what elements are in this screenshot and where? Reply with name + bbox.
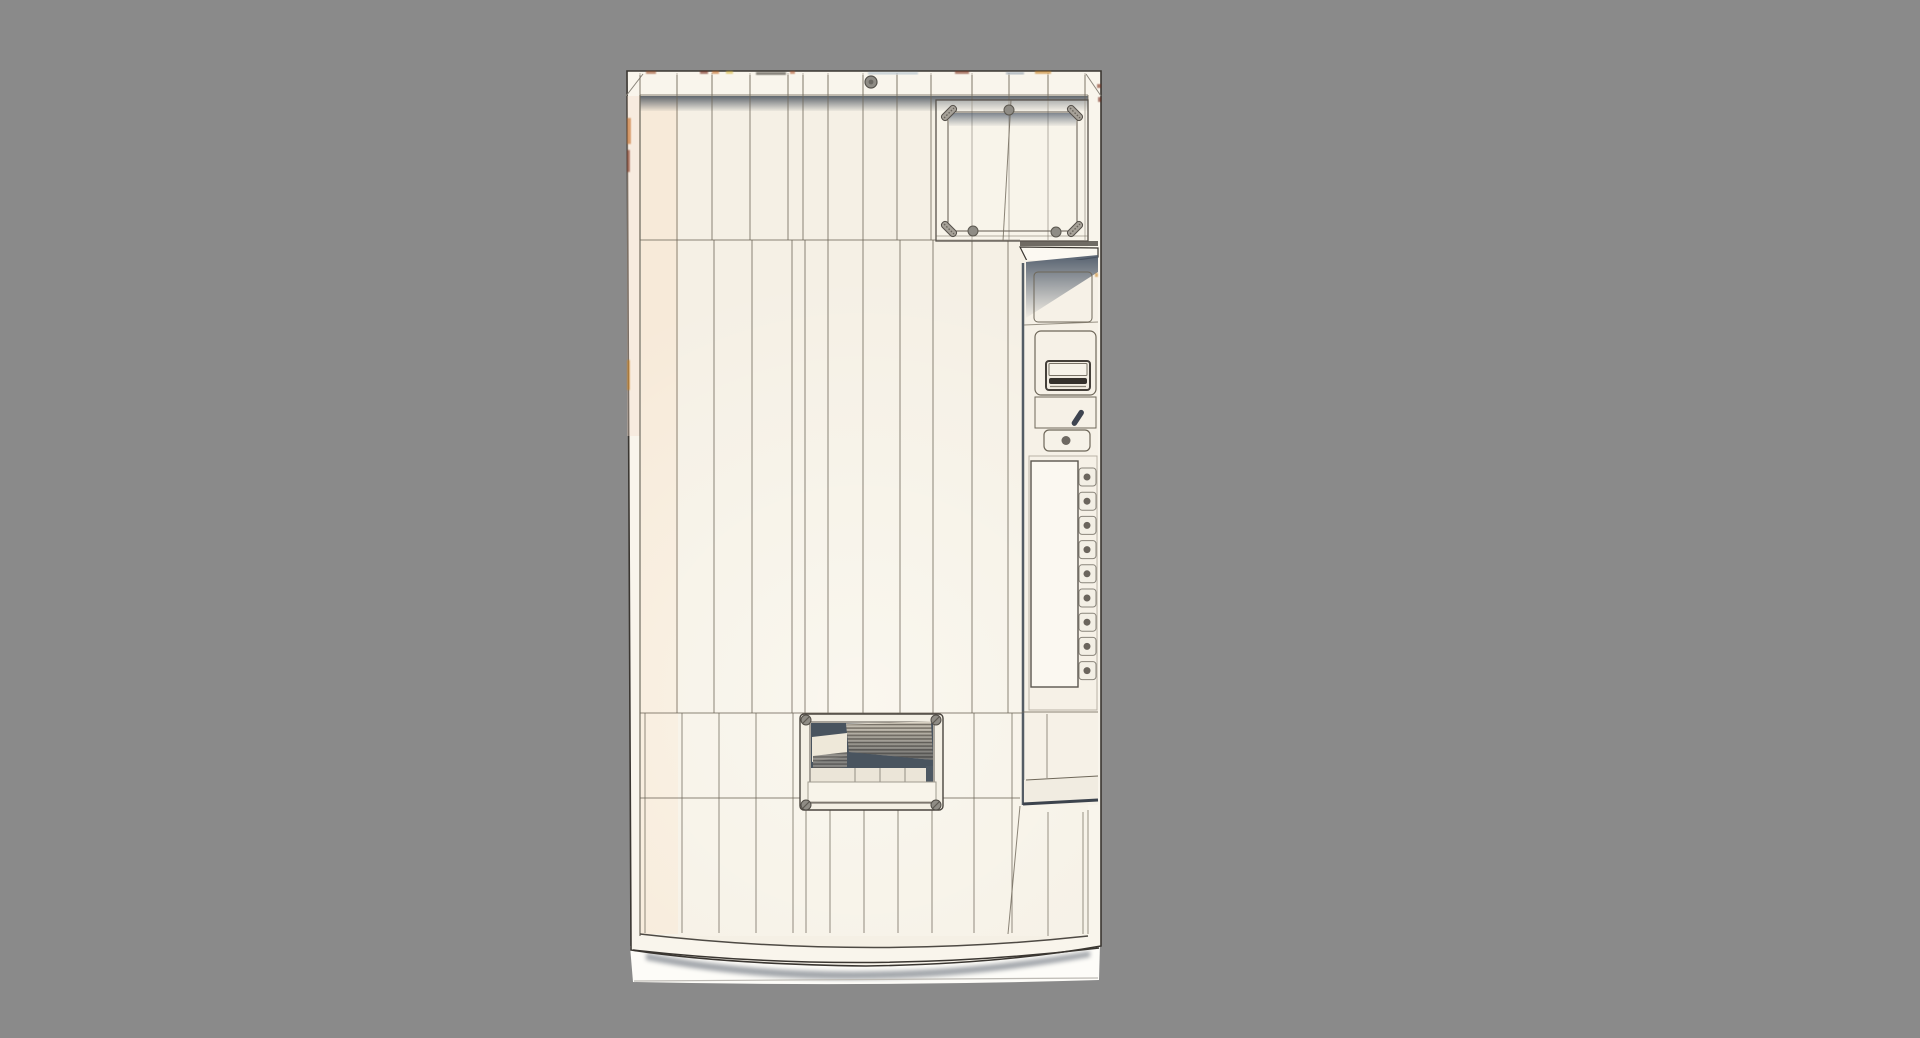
- selection-button: [1079, 516, 1096, 534]
- selection-buttons: [1079, 468, 1096, 680]
- coin-return-button-panel: [1044, 430, 1090, 451]
- delivery-sill: [811, 768, 933, 782]
- selection-label-strip: [1031, 461, 1078, 687]
- vending-machine-render: [0, 0, 1920, 1038]
- marquee-sign-window: [936, 100, 1088, 241]
- coin-slot: [1049, 378, 1087, 384]
- 3d-viewport[interactable]: [0, 0, 1920, 1038]
- selection-panel: [1029, 456, 1097, 710]
- selection-button: [1079, 468, 1096, 486]
- coin-return-button: [1062, 436, 1071, 445]
- column-gap-shadow: [1020, 241, 1098, 246]
- selection-button: [1079, 589, 1096, 607]
- selection-button: [1079, 613, 1096, 631]
- delivery-door: [800, 714, 943, 810]
- top-bolt-center: [869, 80, 874, 85]
- selection-button: [1079, 662, 1096, 680]
- selection-button: [1079, 492, 1096, 510]
- selection-button: [1079, 637, 1096, 655]
- selection-button: [1079, 541, 1096, 559]
- selection-button: [1079, 565, 1096, 583]
- delivery-tray-lip: [808, 782, 936, 802]
